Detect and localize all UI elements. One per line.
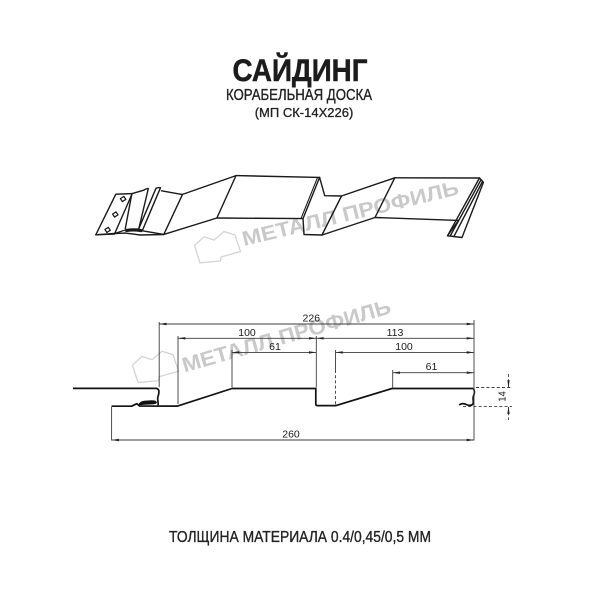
svg-text:ТОЛЩИНА МАТЕРИАЛА 0.4/0,45/0,5: ТОЛЩИНА МАТЕРИАЛА 0.4/0,45/0,5 ММ [169,529,431,546]
svg-text:260: 260 [282,429,300,441]
svg-text:САЙДИНГ: САЙДИНГ [233,52,368,88]
svg-text:100: 100 [238,327,256,339]
svg-text:100: 100 [395,341,413,353]
svg-text:МЕТАЛЛ ПРОФИЛЬ: МЕТАЛЛ ПРОФИЛЬ [180,296,394,378]
svg-text:113: 113 [387,327,404,339]
svg-text:226: 226 [303,313,321,325]
svg-text:14: 14 [497,391,509,402]
svg-text:МЕТАЛЛ ПРОФИЛЬ: МЕТАЛЛ ПРОФИЛЬ [240,177,461,251]
svg-text:(МП СК-14Х226): (МП СК-14Х226) [255,105,354,120]
svg-text:61: 61 [426,361,438,373]
svg-text:61: 61 [269,341,281,353]
svg-text:КОРАБЕЛЬНАЯ ДОСКА: КОРАБЕЛЬНАЯ ДОСКА [226,87,372,104]
